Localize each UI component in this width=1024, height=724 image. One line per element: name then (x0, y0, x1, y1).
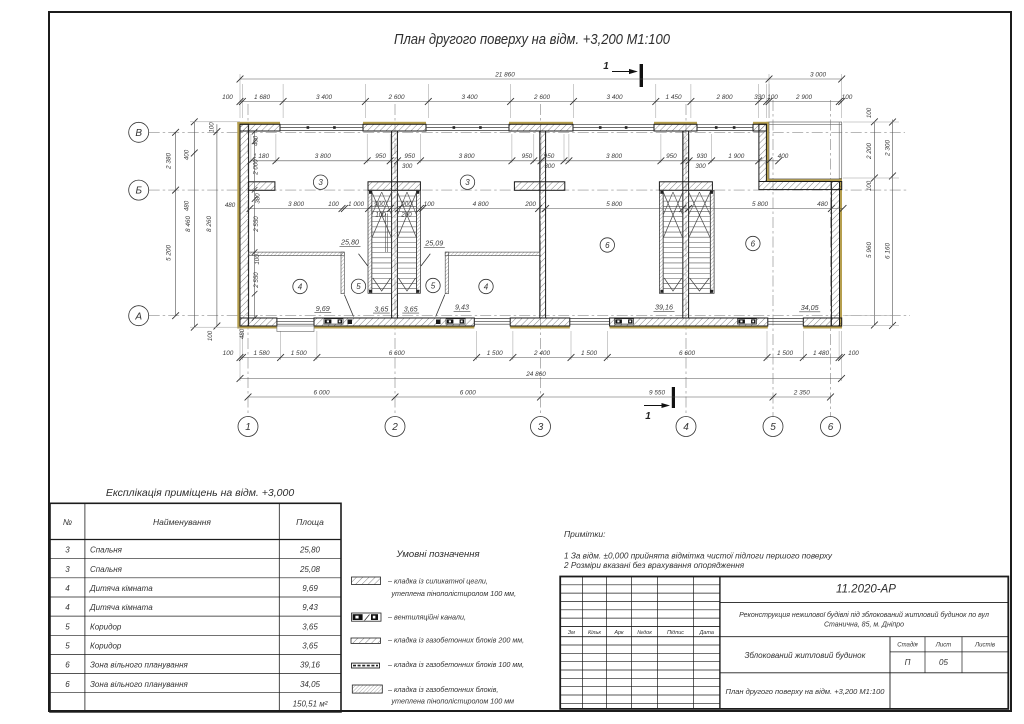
svg-text:2 Розміри вказані без врахуван: 2 Розміри вказані без врахування опорядж… (563, 561, 745, 570)
svg-text:Кільк: Кільк (588, 630, 601, 636)
svg-text:4: 4 (484, 282, 489, 291)
svg-text:Коридор: Коридор (90, 622, 122, 631)
svg-text:1 450: 1 450 (666, 94, 682, 101)
svg-text:6 160: 6 160 (885, 243, 892, 259)
svg-text:400: 400 (253, 135, 260, 146)
svg-text:Дата: Дата (698, 630, 714, 636)
svg-text:100: 100 (866, 107, 873, 118)
svg-text:5 960: 5 960 (866, 242, 873, 258)
svg-text:Станична, 85, м. Дніпро: Станична, 85, м. Дніпро (824, 621, 904, 629)
svg-text:Підпис: Підпис (667, 630, 684, 636)
svg-text:2 600: 2 600 (388, 94, 405, 101)
svg-text:А: А (134, 311, 142, 322)
svg-text:150,51 м²: 150,51 м² (293, 700, 328, 709)
svg-text:100: 100 (254, 254, 261, 265)
svg-text:2 400: 2 400 (533, 350, 550, 357)
svg-text:9 550: 9 550 (649, 389, 665, 396)
svg-text:1 500: 1 500 (777, 350, 793, 357)
svg-text:2 600: 2 600 (533, 94, 550, 101)
svg-text:24 860: 24 860 (525, 371, 546, 378)
svg-text:План другого поверху на відм.: План другого поверху на відм. +3,200 М1:… (726, 687, 886, 696)
svg-text:6 000: 6 000 (314, 389, 330, 396)
svg-text:5: 5 (770, 422, 776, 433)
svg-text:3,65: 3,65 (302, 641, 318, 650)
svg-text:П: П (905, 658, 911, 667)
svg-text:1 500: 1 500 (581, 350, 597, 357)
svg-text:6: 6 (751, 239, 756, 248)
svg-text:3 400: 3 400 (607, 94, 623, 101)
svg-text:950: 950 (522, 153, 533, 160)
svg-text:– кладка із газобетонних блокі: – кладка із газобетонних блоків 200 мм, (387, 636, 524, 645)
svg-text:Стадія: Стадія (897, 643, 918, 649)
svg-text:Спальня: Спальня (90, 565, 123, 574)
svg-text:34,05: 34,05 (300, 680, 321, 689)
svg-text:8 260: 8 260 (206, 216, 213, 232)
svg-text:3 800: 3 800 (288, 201, 304, 208)
svg-text:№док: №док (637, 630, 652, 636)
svg-text:3: 3 (538, 422, 544, 433)
svg-text:25,80: 25,80 (340, 238, 359, 247)
svg-text:400: 400 (778, 153, 789, 160)
svg-text:950: 950 (375, 153, 386, 160)
svg-text:9,43: 9,43 (455, 303, 469, 312)
svg-text:Зблокований житловий будинок: Зблокований житловий будинок (744, 651, 866, 660)
svg-text:3,65: 3,65 (374, 304, 389, 313)
svg-text:950: 950 (666, 153, 677, 160)
svg-text:– кладка із силикатної цегли,: – кладка із силикатної цегли, (387, 577, 488, 586)
svg-text:100: 100 (207, 330, 214, 341)
svg-text:5: 5 (65, 622, 70, 631)
svg-text:11.2020-АР: 11.2020-АР (836, 584, 896, 596)
svg-text:39,16: 39,16 (300, 661, 321, 670)
svg-text:Примітки:: Примітки: (564, 529, 606, 539)
svg-text:План другого поверху на відм.: План другого поверху на відм. +3,200 М1:… (394, 31, 671, 48)
svg-text:1 За відм. ±0,000 прийнята від: 1 За відм. ±0,000 прийнята відмітка чист… (564, 552, 833, 561)
svg-text:200: 200 (524, 201, 536, 208)
svg-text:100: 100 (328, 201, 339, 208)
svg-text:330: 330 (754, 94, 765, 101)
svg-text:930: 930 (696, 153, 707, 160)
svg-text:Найменування: Найменування (153, 517, 211, 527)
svg-text:6: 6 (65, 661, 70, 670)
svg-text:1: 1 (245, 422, 251, 433)
svg-text:Умовні позначення: Умовні позначення (395, 549, 479, 560)
svg-text:100: 100 (223, 350, 234, 357)
svg-text:2 300: 2 300 (885, 140, 892, 157)
svg-text:1 900: 1 900 (728, 153, 744, 160)
svg-text:200: 200 (400, 212, 412, 219)
svg-text:4 800: 4 800 (473, 201, 489, 208)
svg-text:Листів: Листів (974, 643, 995, 649)
svg-text:25,09: 25,09 (424, 239, 443, 248)
svg-text:4: 4 (65, 584, 70, 593)
svg-text:8 460: 8 460 (185, 216, 192, 232)
svg-text:21 860: 21 860 (494, 71, 515, 78)
svg-text:3,65: 3,65 (404, 304, 419, 313)
svg-text:1: 1 (645, 411, 651, 422)
svg-text:утеплена пінополістиролом 100: утеплена пінополістиролом 100 мм (390, 697, 514, 706)
svg-text:5: 5 (65, 641, 70, 650)
svg-text:5: 5 (431, 281, 436, 290)
svg-text:950: 950 (404, 153, 415, 160)
svg-text:1 680: 1 680 (254, 94, 270, 101)
svg-text:9,69: 9,69 (316, 304, 330, 313)
svg-text:2: 2 (391, 422, 398, 433)
svg-text:900: 900 (401, 201, 412, 208)
svg-text:3: 3 (65, 565, 70, 574)
svg-text:100: 100 (767, 94, 778, 101)
svg-text:№: № (63, 517, 72, 527)
svg-text:1 180: 1 180 (253, 153, 269, 160)
svg-text:100: 100 (424, 201, 435, 208)
svg-text:2 900: 2 900 (795, 94, 812, 101)
svg-text:950: 950 (544, 153, 555, 160)
svg-text:3: 3 (465, 178, 470, 187)
svg-text:1 480: 1 480 (813, 350, 829, 357)
svg-text:1: 1 (603, 61, 609, 72)
svg-text:100: 100 (209, 122, 216, 133)
svg-text:100: 100 (866, 180, 873, 191)
svg-text:2 550: 2 550 (253, 272, 260, 289)
svg-text:25,80: 25,80 (299, 546, 321, 555)
svg-text:05: 05 (939, 658, 948, 667)
svg-text:В: В (135, 128, 142, 139)
svg-text:6: 6 (65, 680, 70, 689)
svg-text:1 500: 1 500 (291, 350, 307, 357)
svg-text:Зона вільного планування: Зона вільного планування (90, 680, 189, 689)
svg-text:Коридор: Коридор (90, 641, 122, 650)
svg-text:100: 100 (842, 94, 853, 101)
svg-text:Площа: Площа (296, 517, 324, 527)
svg-text:Дитяча кімната: Дитяча кімната (89, 603, 153, 612)
svg-text:5 800: 5 800 (752, 201, 768, 208)
svg-text:Зона вільного планування: Зона вільного планування (90, 661, 189, 670)
svg-text:1 580: 1 580 (254, 350, 270, 357)
svg-text:5 200: 5 200 (166, 245, 173, 261)
svg-text:300: 300 (402, 163, 413, 170)
svg-text:25,08: 25,08 (299, 565, 321, 574)
svg-text:480: 480 (239, 328, 246, 339)
svg-text:480: 480 (817, 201, 828, 208)
svg-text:5 800: 5 800 (606, 201, 622, 208)
svg-text:5: 5 (356, 282, 361, 291)
svg-text:3 400: 3 400 (316, 94, 332, 101)
svg-text:Зм: Зм (568, 630, 575, 636)
svg-text:3,65: 3,65 (302, 622, 318, 631)
svg-text:400: 400 (184, 149, 191, 160)
svg-text:4: 4 (683, 422, 689, 433)
svg-text:утеплена пінополістиролом 100: утеплена пінополістиролом 100 мм, (390, 589, 516, 598)
svg-text:480: 480 (225, 202, 236, 209)
svg-text:3 000: 3 000 (810, 71, 826, 78)
svg-text:9,69: 9,69 (302, 584, 318, 593)
svg-text:300: 300 (695, 163, 706, 170)
svg-text:2 550: 2 550 (253, 216, 260, 233)
svg-text:100: 100 (848, 350, 859, 357)
svg-text:34,05: 34,05 (801, 303, 820, 312)
svg-text:1 500: 1 500 (487, 350, 503, 357)
svg-text:2 200: 2 200 (866, 143, 873, 160)
svg-text:39,16: 39,16 (655, 303, 673, 312)
svg-text:– кладка із газобетонних блокі: – кладка із газобетонних блоків, (387, 685, 498, 694)
svg-text:Арк: Арк (613, 630, 624, 636)
svg-text:100: 100 (375, 212, 386, 219)
svg-text:Дитяча кімната: Дитяча кімната (89, 584, 153, 593)
svg-text:Реконструкция нежилової будівл: Реконструкция нежилової будівлі під збло… (739, 611, 989, 619)
svg-text:3: 3 (65, 546, 70, 555)
svg-text:6 600: 6 600 (679, 350, 695, 357)
svg-text:6: 6 (828, 422, 834, 433)
svg-text:2 000: 2 000 (253, 159, 260, 176)
svg-text:2 800: 2 800 (716, 94, 733, 101)
svg-text:6 000: 6 000 (460, 389, 476, 396)
svg-text:3 800: 3 800 (315, 153, 331, 160)
svg-text:– вентиляційні канали,: – вентиляційні канали, (387, 612, 466, 621)
svg-text:9,43: 9,43 (302, 603, 318, 612)
svg-text:3 800: 3 800 (459, 153, 475, 160)
svg-text:1 000: 1 000 (348, 201, 364, 208)
svg-text:380: 380 (255, 193, 262, 204)
svg-text:2 350: 2 350 (793, 389, 810, 396)
svg-text:3: 3 (318, 178, 323, 187)
svg-text:6 600: 6 600 (389, 350, 405, 357)
svg-text:Лист: Лист (935, 643, 951, 649)
svg-text:4: 4 (298, 282, 303, 291)
svg-text:3 800: 3 800 (606, 153, 622, 160)
svg-text:100: 100 (222, 94, 233, 101)
svg-text:4: 4 (65, 603, 70, 612)
svg-text:– кладка із газобетонних блокі: – кладка із газобетонних блоків 100 мм, (387, 660, 524, 669)
svg-text:3 400: 3 400 (462, 94, 478, 101)
svg-text:300: 300 (544, 163, 555, 170)
svg-text:Експлікація приміщень на відм.: Експлікація приміщень на відм. +3,000 (106, 487, 295, 499)
svg-text:2 380: 2 380 (166, 153, 173, 170)
svg-text:Спальня: Спальня (90, 546, 123, 555)
svg-text:900: 900 (374, 201, 385, 208)
svg-text:Б: Б (135, 186, 142, 197)
svg-text:6: 6 (605, 241, 610, 250)
svg-text:480: 480 (184, 200, 191, 211)
